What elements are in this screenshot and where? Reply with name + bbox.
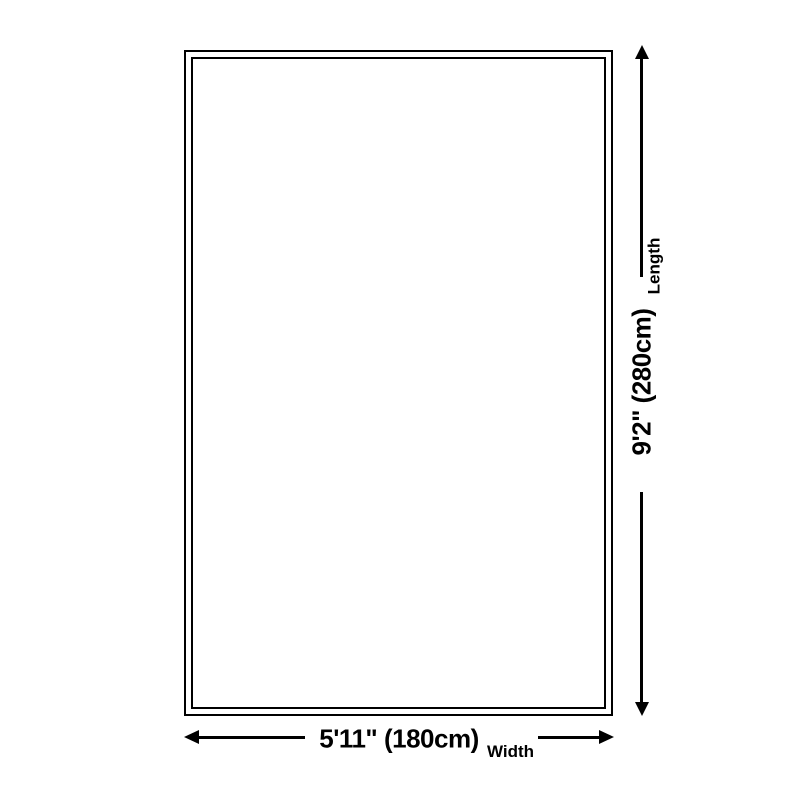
arrow-right-icon (599, 730, 614, 744)
rug-size-diagram: 9'2" (280cm) Length 5'11" (180cm) Width (0, 0, 800, 800)
width-dimension-line-right (538, 736, 601, 739)
length-dimension-line-lower (640, 492, 643, 706)
arrow-down-icon (635, 702, 649, 716)
rug-outline (184, 50, 613, 716)
width-dimension-value: 5'11" (180cm) (319, 724, 478, 755)
length-dimension-value: 9'2" (280cm) (627, 309, 658, 456)
length-dimension-line-upper (640, 56, 643, 277)
width-dimension-label: Width (487, 743, 534, 760)
length-dimension-label: Length (646, 238, 663, 295)
width-dimension-line-left (196, 736, 305, 739)
rug-outline-inner (191, 57, 606, 709)
